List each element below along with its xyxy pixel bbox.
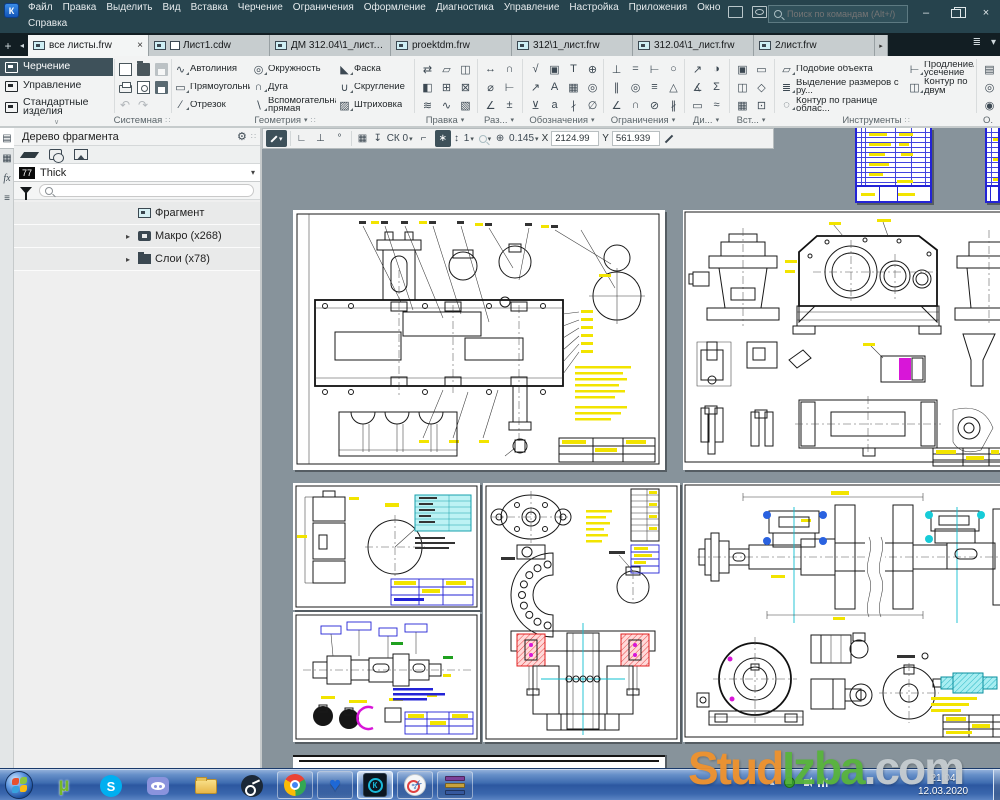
document-tab[interactable]: ДМ 312.04\1_лист.frw ×	[270, 35, 391, 56]
title-block	[559, 438, 655, 462]
snipping-tool-button[interactable]: ✂	[397, 771, 433, 799]
management-category-icon	[5, 81, 18, 92]
geometry-tool-icon: ◎	[252, 63, 265, 76]
new-tab-button[interactable]: +	[0, 35, 16, 56]
constraint-tool-icon[interactable]: ○	[664, 60, 683, 78]
geometry-tool-label: Отрезок	[190, 101, 226, 110]
tree-item-icon	[138, 208, 151, 218]
document-tab[interactable]: 312.04\1_лист.frw ×	[633, 35, 754, 56]
tree-item-label: Макро (x268)	[155, 230, 222, 242]
zoom-search-dropdown[interactable]: ▾	[477, 130, 493, 147]
instrument-tool[interactable]: ⊢ Продление/усечение	[906, 60, 974, 78]
geometry-tool[interactable]: ∿ Автолиния	[172, 60, 250, 78]
constraint-tool-icon[interactable]: ∠	[607, 96, 626, 114]
annotation-tool-icon[interactable]: ∅	[583, 96, 602, 114]
coordinate-system-dropdown[interactable]: ↧ СК 0▾	[374, 130, 413, 147]
magnifier-icon	[479, 135, 487, 143]
ortho-corner-icon[interactable]: ⌐	[416, 130, 432, 147]
instrument-tool[interactable]: ◫ Контур по двум контурам	[906, 78, 974, 96]
section-label-geometry: Геометрия	[254, 115, 301, 126]
panel-title: Дерево фрагмента	[18, 131, 237, 143]
dimension-tool-icon[interactable]: ⌀	[481, 78, 500, 96]
document-tab[interactable]: Лист1.cdw ×	[149, 35, 270, 56]
tech-requirements-text	[575, 366, 631, 421]
insert-tool-icon[interactable]: ◇	[752, 78, 771, 96]
clock-time: 21:04	[900, 772, 986, 785]
tab-label: ДМ 312.04\1_лист.frw	[291, 40, 385, 51]
snap-polar-icon[interactable]: °	[332, 130, 348, 147]
edit-tool-icon[interactable]: ⊞	[437, 78, 456, 96]
dimension-tool-icon[interactable]: ±	[500, 96, 519, 114]
kompas-button[interactable]: К	[357, 771, 393, 799]
constraints-tool-group: ⊥∥∠=◎∩⊢≡⊘○△∦	[607, 60, 683, 114]
section-caret-icon[interactable]: ▾	[591, 116, 595, 124]
chevron-down-icon: ▾	[251, 168, 255, 177]
fragment-doc-icon	[759, 41, 771, 50]
menu-item[interactable]: Черчение	[237, 2, 284, 13]
annotation-tool-icon[interactable]: а	[545, 96, 564, 114]
housing-side-view	[689, 228, 779, 326]
tab-scroll-left[interactable]: ◂	[16, 35, 28, 56]
chrome-button[interactable]	[277, 771, 313, 799]
fragment-doc-icon	[154, 41, 166, 50]
tree-search-input[interactable]	[39, 184, 254, 197]
section-label-annotations: Обозначения	[529, 115, 588, 126]
instrument-tool[interactable]: ≣ Выделение размеров с ру...	[778, 78, 906, 96]
raster-filter-icon[interactable]	[74, 149, 88, 160]
annotation-tool-icon[interactable]: ∤	[564, 96, 583, 114]
utorrent-icon[interactable]: µ	[52, 774, 76, 798]
geometry-tool[interactable]: ∕ Отрезок	[172, 96, 250, 114]
geometry-tool[interactable]: ▭ Прямоугольник	[172, 78, 250, 96]
fragment-doc-icon	[275, 41, 287, 50]
geometry-tool[interactable]: ◣ Фаска	[336, 60, 418, 78]
diagnostics-tool-icon[interactable]: ↗	[688, 60, 707, 78]
dimension-tool-icon[interactable]: ↔	[481, 60, 500, 78]
parameter-bar: ▾ ∟ ⊥ ° ▦ ↧ СК 0▾ ⌐ ∗ ↕ 1▾ ▾ ⊕ 0.145▾ X …	[262, 128, 774, 149]
show-desktop-button[interactable]	[993, 769, 1000, 800]
edit-tool-icon[interactable]: ⇄	[418, 60, 437, 78]
y-coordinate-field[interactable]: 561.939	[612, 131, 660, 146]
panel-switch-strip: ▤ ▦ fx ≡	[0, 128, 14, 768]
document-tab[interactable]: 312\1_лист.frw ×	[512, 35, 633, 56]
system-tool-group: ↶ ↷	[116, 60, 172, 114]
menu-bar: ФайлПравкаВыделитьВидВставкаЧерчениеОгра…	[27, 2, 721, 13]
tabbar-pin-icon[interactable]: ▾	[991, 37, 996, 48]
geometry-tool[interactable]: ∪ Скругление	[336, 78, 418, 96]
edit-tool-icon[interactable]: ∿	[437, 96, 456, 114]
flange-top-view	[491, 491, 571, 543]
geometry-tool-label: Автолиния	[190, 65, 237, 74]
start-button[interactable]	[5, 771, 33, 799]
geometry-tool-icon: ▨	[338, 99, 351, 112]
category-drawing[interactable]: Черчение	[0, 58, 113, 76]
category-standard-parts[interactable]: Стандартные изделия	[0, 96, 113, 118]
insert-tool-icon[interactable]: ▦	[733, 96, 752, 114]
restore-icon	[951, 9, 961, 18]
edit-tool-icon[interactable]: ▧	[456, 96, 475, 114]
coupling-details	[811, 633, 872, 709]
minimize-button[interactable]: –	[912, 0, 940, 26]
instrument-tool-icon: ◌	[780, 99, 793, 111]
tree-row[interactable]: ▸ Макро (x268)	[14, 225, 260, 248]
title-block	[933, 448, 1000, 466]
drawing-canvas[interactable]: ▾ ∟ ⊥ ° ▦ ↧ СК 0▾ ⌐ ∗ ↕ 1▾ ▾ ⊕ 0.145▾ X …	[262, 128, 1000, 768]
tab-label: все листы.frw	[49, 40, 134, 51]
bearing-housing-view	[697, 637, 803, 725]
dimensions-tool-group: ↔⌀∠∩⊢±	[481, 60, 519, 114]
edit-tool-icon[interactable]: ◧	[418, 78, 437, 96]
zoom-dropdown[interactable]: ⊕ 0.145▾	[496, 130, 539, 147]
section-handle[interactable]: ∷	[905, 116, 910, 125]
search-input[interactable]	[787, 9, 902, 19]
clock-date: 12.03.2020	[900, 785, 986, 798]
section-label-instruments: Инструменты	[842, 115, 901, 126]
menu-item[interactable]: Выделить	[105, 2, 153, 13]
constraint-tool-icon[interactable]: ⊢	[645, 60, 664, 78]
taskbar-clock[interactable]: 21:04 12.03.2020	[900, 772, 986, 798]
grid-toggle-icon[interactable]: ▦	[355, 130, 371, 147]
constraint-tool-icon[interactable]: ≡	[645, 78, 664, 96]
diagnostics-tool-group: ↗∡▭◑Σ≈	[688, 60, 726, 114]
rounding-toggle[interactable]: ∗	[435, 130, 451, 147]
sheet-partial-bottom[interactable]	[293, 755, 665, 768]
geometry-tool-label: Дуга	[268, 83, 288, 92]
diagnostics-tool-icon[interactable]: ∡	[688, 78, 707, 96]
section-b-b	[879, 653, 939, 723]
instruments-tool-group: ▱ Подобие объекта ≣ Выделение размеров с…	[778, 60, 974, 114]
constraint-tool-icon[interactable]: =	[626, 60, 645, 78]
panel-handle[interactable]: ∷	[251, 132, 256, 141]
sheet-housing-drawing[interactable]	[683, 210, 1000, 470]
section-caret-icon[interactable]: ▾	[672, 116, 676, 124]
expand-arrow-icon[interactable]: ▸	[126, 255, 134, 264]
geometry-tool-icon: ∿	[174, 63, 187, 76]
instrument-tool-icon: ◫	[908, 81, 921, 94]
sheet-specification-1[interactable]	[855, 128, 932, 203]
tree-item-icon	[138, 254, 151, 264]
constraint-tool-icon[interactable]: ◎	[626, 78, 645, 96]
section-label-diagnostics: Ди...	[693, 115, 713, 126]
dimension-tool-icon[interactable]: ∠	[481, 96, 500, 114]
geometry-tool[interactable]: ▨ Штриховка	[336, 96, 418, 114]
diagnostics-tool-icon[interactable]: ≈	[707, 96, 726, 114]
new-window-icon[interactable]	[728, 6, 743, 18]
close-tab-icon[interactable]: ×	[137, 40, 143, 51]
save-as-icon[interactable]	[155, 81, 168, 94]
fragment-tree-panel: Дерево фрагмента ⚙ ∷ 77 Thick ▾ ▸ Фрагме…	[14, 128, 260, 768]
document-tab[interactable]: proektdm.frw ×	[391, 35, 512, 56]
annotation-tool-icon[interactable]: ⊕	[583, 60, 602, 78]
antivirus-tray-icon[interactable]	[784, 777, 795, 788]
menu-item[interactable]: Управление	[503, 2, 561, 13]
redo-icon[interactable]: ↷	[134, 96, 152, 114]
app-logo-icon: К	[4, 3, 19, 18]
menu-item[interactable]: Настройка	[568, 2, 619, 13]
zoom-value: 0.145	[509, 133, 534, 144]
section-label-edit: Правка	[426, 115, 458, 126]
filter-funnel-icon[interactable]	[20, 187, 32, 194]
geometry-tool-label: Скругление	[354, 83, 405, 92]
annotation-tool-icon[interactable]: Т	[564, 60, 583, 78]
open-document-icon[interactable]	[137, 63, 150, 76]
menu-panel-icon[interactable]: ≡	[0, 188, 14, 208]
standard-parts-category-icon	[5, 102, 18, 113]
title-block	[405, 712, 473, 734]
menu-item[interactable]: Вставка	[190, 2, 229, 13]
system-tray: ▴	[770, 777, 828, 788]
x-label: X	[542, 133, 549, 144]
instrument-tool-icon: ≣	[780, 81, 793, 94]
annotation-tool-icon[interactable]: ◎	[583, 78, 602, 96]
expand-arrow-icon[interactable]: ▸	[126, 232, 134, 241]
instrument-tool-label: Контур по границе облас...	[796, 97, 906, 114]
document-tab[interactable]: все листы.frw ×	[28, 35, 149, 56]
extra-tool-icon[interactable]: ▤	[980, 60, 999, 78]
snap-ortho-icon[interactable]: ⊥	[313, 130, 329, 147]
geometry-tool-icon: ∖	[252, 99, 265, 112]
constraint-tool-icon[interactable]: ⊥	[607, 60, 626, 78]
instrument-tool-label: Подобие объекта	[796, 65, 873, 74]
pick-point-icon[interactable]	[663, 134, 673, 144]
instrument-tool-label: Контур по двум контурам	[924, 78, 974, 96]
x-coordinate-field[interactable]: 2124.99	[551, 131, 599, 146]
note-text	[393, 688, 445, 701]
menu-item[interactable]: Вид	[162, 2, 182, 13]
note-text	[415, 537, 455, 549]
geometry-tool-icon: ◣	[338, 63, 351, 76]
fragment-doc-icon	[33, 41, 45, 50]
section-label-dimensions: Раз...	[484, 115, 507, 126]
step-value: 1	[464, 133, 470, 144]
print-preview-icon[interactable]	[137, 81, 150, 94]
preview-window-icon[interactable]	[752, 6, 767, 18]
annotation-tool-icon[interactable]: √	[526, 60, 545, 78]
constraint-tool-icon[interactable]: ∩	[626, 96, 645, 114]
edit-tool-icon[interactable]: ⊠	[456, 78, 475, 96]
windows-taskbar: µ S ♥ К ✂ ▴ 21:04 12.03.2020	[0, 768, 1000, 800]
tab-label: Лист1.cdw	[183, 40, 264, 51]
category-label: Стандартные изделия	[23, 98, 113, 117]
annotation-tool-icon[interactable]: А	[545, 78, 564, 96]
line-thickness-dropdown[interactable]: 77 Thick ▾	[14, 164, 260, 182]
pen-icon	[270, 135, 277, 142]
explorer-icon[interactable]	[194, 774, 218, 798]
section-handle[interactable]: ∷	[165, 116, 170, 125]
parameter-table	[415, 495, 471, 531]
menu-item[interactable]: Приложения	[628, 2, 689, 13]
geometry-tool-label: Штриховка	[354, 101, 402, 110]
dimension-tool-icon[interactable]: ∩	[500, 60, 519, 78]
dimension-tool-icon[interactable]: ⊢	[500, 78, 519, 96]
sheet-specification-2[interactable]	[985, 128, 1000, 203]
annotation-tool-icon[interactable]: ▣	[545, 60, 564, 78]
geometry-tool-label: Окружность	[268, 65, 321, 74]
edit-tool-icon[interactable]: ≋	[418, 96, 437, 114]
panel-splitter[interactable]	[260, 128, 262, 768]
sheet-shaft-assembly-drawing[interactable]	[683, 483, 1000, 742]
sheet-assembly-drawing[interactable]	[293, 210, 665, 470]
tree-row[interactable]: ▸ Фрагмент	[14, 202, 260, 225]
edit-tool-group: ⇄◧≋▱⊞∿◫⊠▧	[418, 60, 475, 114]
tech-text	[586, 510, 612, 543]
highlighted-shaft-detail	[931, 673, 997, 712]
undo-icon[interactable]: ↶	[116, 96, 134, 114]
title-block	[943, 715, 1000, 737]
geometry-tool[interactable]: ∖ Вспомогательная прямая	[250, 96, 336, 114]
sheet-doc-icon	[170, 41, 180, 50]
hex-part	[505, 439, 527, 456]
volume-icon[interactable]	[804, 779, 809, 786]
tree-panel-icon[interactable]: ▤	[0, 128, 14, 148]
instrument-tool[interactable]: ▱ Подобие объекта	[778, 60, 906, 78]
annotation-tool-icon[interactable]: ↗	[526, 78, 545, 96]
section-label-system: Системная	[114, 115, 163, 126]
diagnostics-tool-icon[interactable]: Σ	[707, 78, 726, 96]
geometry-tool-icon: ∪	[338, 81, 351, 94]
discord-icon[interactable]	[146, 774, 170, 798]
restore-button[interactable]	[942, 0, 970, 26]
category-management[interactable]: Управление	[0, 77, 113, 95]
section-caret-icon[interactable]: ▾	[716, 116, 720, 124]
menu-item[interactable]: Оформление	[363, 2, 427, 13]
section-caret-icon[interactable]: ▾	[762, 116, 766, 124]
menu-item[interactable]: Диагностика	[435, 2, 495, 13]
annotation-tool-icon[interactable]: ⊻	[526, 96, 545, 114]
menu-item[interactable]: Правка	[62, 2, 98, 13]
document-tabbar: + ◂ все листы.frw × Лист1.cdw ×	[0, 33, 1000, 56]
base-plan-view	[795, 396, 941, 456]
new-document-icon[interactable]	[119, 63, 132, 76]
tree-item-label: Слои (x78)	[155, 253, 210, 265]
document-tab[interactable]: 2лист.frw ×	[754, 35, 875, 56]
instrument-tool-icon: ▱	[780, 63, 793, 76]
tree-row[interactable]: ▸ Слои (x78)	[14, 248, 260, 271]
kompas-application-window: К ФайлПравкаВыделитьВидВставкаЧерчениеОг…	[0, 0, 1000, 800]
annotation-tool-icon[interactable]: ▦	[564, 78, 583, 96]
gear-icon[interactable]: ⚙	[237, 130, 247, 143]
diagnostics-tool-icon[interactable]: ◑	[707, 60, 726, 78]
menu-item[interactable]: Окно	[696, 2, 721, 13]
fragment-doc-icon	[638, 41, 650, 50]
styles-button[interactable]: ▾	[266, 130, 287, 147]
cs-value: СК 0	[387, 133, 408, 144]
housing-front-view	[785, 219, 941, 334]
instrument-tool-label: Продление/усечение	[924, 61, 974, 78]
section-details	[313, 705, 401, 729]
gear-section-view	[297, 491, 345, 583]
section-label-insert: Вст...	[737, 115, 759, 126]
title-block	[391, 579, 473, 605]
housing-side-view-right	[955, 230, 1000, 326]
geometry-tool-icon: ▭	[174, 81, 187, 94]
constraint-tool-icon[interactable]: ⊘	[645, 96, 664, 114]
print-icon[interactable]	[119, 85, 132, 93]
menu-bar-row2: Справка	[27, 18, 68, 29]
instrument-tool-label: Выделение размеров с ру...	[796, 79, 906, 96]
sheet-cup-part-drawing[interactable]	[483, 483, 680, 742]
dimension-marks	[321, 622, 453, 703]
properties-panel-icon[interactable]: ▦	[0, 148, 14, 168]
tab-label: 312\1_лист.frw	[533, 40, 627, 51]
sheet-shaft-drawing[interactable]	[293, 612, 480, 742]
collapse-categories-icon[interactable]: ∨	[0, 118, 113, 126]
insert-tool-icon[interactable]: ▭	[752, 60, 771, 78]
extra-tool-icon[interactable]: ◉	[980, 96, 999, 114]
section-handle[interactable]: ∷	[311, 116, 316, 125]
section-caret-icon[interactable]: ▾	[461, 116, 465, 124]
edit-tool-icon[interactable]: ◫	[456, 60, 475, 78]
constraint-tool-icon[interactable]: △	[664, 78, 683, 96]
winrar-button[interactable]	[437, 771, 473, 799]
network-icon[interactable]	[818, 778, 828, 787]
tab-list: все листы.frw × Лист1.cdw × ДМ 312.04\1_…	[28, 35, 875, 56]
section-caret-icon[interactable]: ▾	[510, 116, 514, 124]
tab-label: 2лист.frw	[775, 40, 869, 51]
heart-app-button[interactable]: ♥	[317, 771, 353, 799]
instrument-tool-icon: ⊢	[908, 63, 921, 76]
geometry-tool[interactable]: ∩ Дуга	[250, 78, 336, 96]
edit-tool-icon[interactable]: ▱	[437, 60, 456, 78]
tab-list-button[interactable]: ≣	[973, 37, 981, 48]
section-label-constraints: Ограничения	[611, 115, 669, 126]
insert-tool-icon[interactable]: ◫	[733, 78, 752, 96]
menu-item[interactable]: Ограничения	[292, 2, 355, 13]
y-label: Y	[602, 133, 609, 144]
menu-item-help[interactable]: Справка	[27, 18, 68, 29]
menu-item[interactable]: Файл	[27, 2, 54, 13]
geometry-tool-label: Прямоугольник	[190, 83, 250, 92]
tab-label: 312.04\1_лист.frw	[654, 40, 748, 51]
section-caret-icon[interactable]: ▾	[304, 116, 308, 124]
skype-icon[interactable]: S	[99, 774, 123, 798]
step-dropdown[interactable]: ↕ 1▾	[454, 130, 474, 147]
steam-icon[interactable]	[240, 774, 264, 798]
constraint-tool-icon[interactable]: ∥	[607, 78, 626, 96]
category-label: Черчение	[23, 62, 70, 72]
geometry-tool[interactable]: ◎ Окружность	[250, 60, 336, 78]
insert-tool-icon[interactable]: ⊡	[752, 96, 771, 114]
sheet-gear-part-drawing[interactable]	[293, 483, 480, 610]
geometry-tool-icon: ∩	[252, 81, 265, 93]
close-button[interactable]: ×	[972, 0, 1000, 26]
thickness-value: Thick	[40, 167, 66, 179]
tab-label: proektdm.frw	[412, 40, 506, 51]
fragment-doc-icon	[517, 41, 529, 50]
instrument-tool[interactable]: ◌ Контур по границе облас...	[778, 96, 906, 114]
fragment-doc-icon	[396, 41, 408, 50]
extra-tool-icon[interactable]: ◎	[980, 78, 999, 96]
tab-overflow-sliver[interactable]: ▸	[875, 35, 888, 56]
half-section-view	[501, 545, 553, 637]
variables-panel-icon[interactable]: fx	[0, 168, 14, 188]
objects-filter-icon[interactable]	[49, 149, 62, 160]
line-style-icon[interactable]	[20, 152, 39, 158]
fragment-tree: ▸ Фрагмент ▸ Макро (x268) ▸ Слои (x78)	[14, 202, 260, 271]
search-icon	[45, 187, 53, 195]
constraint-tool-icon[interactable]: ∦	[664, 96, 683, 114]
cover-view	[339, 412, 457, 456]
snap-angle-icon[interactable]: ∟	[294, 130, 310, 147]
section-label-extra: О.	[983, 115, 993, 126]
insert-tool-icon[interactable]: ▣	[733, 60, 752, 78]
save-icon[interactable]	[155, 63, 168, 76]
command-search[interactable]	[768, 5, 908, 23]
main-section-view	[511, 623, 655, 735]
diagnostics-tool-icon[interactable]: ▭	[688, 96, 707, 114]
extra-tool-group: ▤◎◉	[980, 60, 999, 114]
hidden-icons-arrow[interactable]: ▴	[770, 777, 775, 788]
